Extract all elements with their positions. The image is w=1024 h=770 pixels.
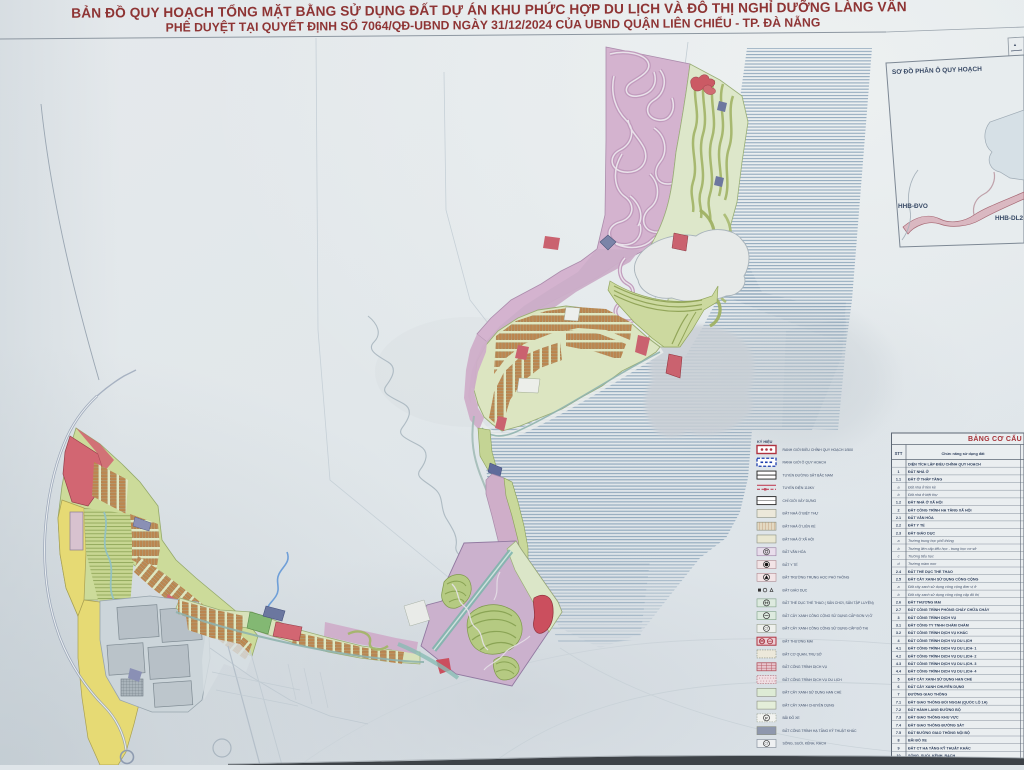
svg-text:ĐẤT GIÁO DỤC: ĐẤT GIÁO DỤC xyxy=(908,530,935,535)
svg-text:ĐẤT Y TẾ: ĐẤT Y TẾ xyxy=(908,523,925,528)
svg-text:ĐƯỜNG GIAO THÔNG: ĐƯỜNG GIAO THÔNG xyxy=(908,692,947,697)
svg-text:P: P xyxy=(765,715,768,720)
svg-text:ĐẤT THỂ DỤC THỂ THAO: ĐẤT THỂ DỤC THỂ THAO xyxy=(908,569,953,574)
svg-text:ĐẤT ĐƯỜNG GIAO THÔNG NỘI BỘ: ĐẤT ĐƯỜNG GIAO THÔNG NỘI BỘ xyxy=(908,730,970,735)
svg-text:ĐẤT GIAO THÔNG KHU VỰC: ĐẤT GIAO THÔNG KHU VỰC xyxy=(908,715,959,720)
svg-text:4.2: 4.2 xyxy=(896,654,901,658)
svg-text:ĐẤT CÂY XANH SỬ DỤNG CÔNG CỘNG: ĐẤT CÂY XANH SỬ DỤNG CÔNG CỘNG xyxy=(908,577,979,582)
svg-text:ĐẤT CÔNG TRÌNH DỊCH VỤ: ĐẤT CÔNG TRÌNH DỊCH VỤ xyxy=(783,664,828,669)
svg-text:KÝ HIỆU: KÝ HIỆU xyxy=(757,439,773,444)
svg-text:ĐẤT CÂY XANH SỬ DỤNG HẠN CHẾ: ĐẤT CÂY XANH SỬ DỤNG HẠN CHẾ xyxy=(908,676,973,681)
svg-text:6: 6 xyxy=(897,685,899,689)
svg-text:ĐẤT CÔNG TRÌNH DỊCH VỤ DU LỊCH: ĐẤT CÔNG TRÌNH DỊCH VỤ DU LỊCH- 1 xyxy=(908,646,976,651)
svg-text:HHB-ĐVO: HHB-ĐVO xyxy=(898,203,928,210)
svg-text:ĐẤT NHÀ Ở: ĐẤT NHÀ Ở xyxy=(908,469,930,474)
svg-text:2.3: 2.3 xyxy=(896,531,901,535)
svg-text:a: a xyxy=(897,485,899,489)
svg-text:ĐẤT CÔNG TRÌNH HẠ TẦNG XÃ HỘI: ĐẤT CÔNG TRÌNH HẠ TẦNG XÃ HỘI xyxy=(908,507,972,512)
svg-text:1: 1 xyxy=(897,470,899,474)
svg-text:RANH GIỚI ĐIỀU CHỈNH QUY HOẠCH: RANH GIỚI ĐIỀU CHỈNH QUY HOẠCH 1/500 xyxy=(783,447,854,452)
svg-text:ĐẤT VĂN HÓA: ĐẤT VĂN HÓA xyxy=(783,549,807,554)
svg-text:3.2: 3.2 xyxy=(896,631,901,635)
svg-text:Trường tiểu học: Trường tiểu học xyxy=(908,554,934,558)
svg-text:ĐẤT CÔNG TRÌNH DỊCH VỤ KHÁC: ĐẤT CÔNG TRÌNH DỊCH VỤ KHÁC xyxy=(908,630,968,635)
svg-text:1.2: 1.2 xyxy=(896,501,901,505)
svg-text:ĐẤT GIAO THÔNG ĐƯỜNG SẮT: ĐẤT GIAO THÔNG ĐƯỜNG SẮT xyxy=(908,722,965,727)
svg-text:8: 8 xyxy=(897,739,899,743)
svg-text:ĐẤT GIAO THÔNG ĐỐI NGOẠI (QUỐC: ĐẤT GIAO THÔNG ĐỐI NGOẠI (QUỐC LỘ 1A) xyxy=(908,699,988,704)
svg-text:2: 2 xyxy=(897,508,899,512)
svg-text:ĐẤT CÔNG TY TNHH CHÀM CHÀM: ĐẤT CÔNG TY TNHH CHÀM CHÀM xyxy=(908,623,969,628)
svg-text:2.1: 2.1 xyxy=(896,516,901,520)
svg-text:ĐẤT NHÀ Ở XÃ HỘI: ĐẤT NHÀ Ở XÃ HỘI xyxy=(783,536,815,541)
svg-text:BÃI ĐỖ XE: BÃI ĐỖ XE xyxy=(783,715,801,720)
svg-text:Chức năng sử dụng đất: Chức năng sử dụng đất xyxy=(941,452,985,456)
svg-text:ĐẤT CÔNG TRÌNH DỊCH VỤ DU LỊCH: ĐẤT CÔNG TRÌNH DỊCH VỤ DU LỊCH- 4 xyxy=(908,669,977,674)
svg-text:2.6: 2.6 xyxy=(896,601,901,605)
svg-text:3.1: 3.1 xyxy=(896,624,901,628)
svg-text:HHB-DL2: HHB-DL2 xyxy=(995,215,1023,222)
svg-text:ĐẤT CÂY XANH CHUYÊN DỤNG: ĐẤT CÂY XANH CHUYÊN DỤNG xyxy=(908,684,964,689)
svg-text:ĐẤT CÂY XANH CÔNG CỘNG SỬ DỤNG: ĐẤT CÂY XANH CÔNG CỘNG SỬ DỤNG CẤP ĐÔ TH… xyxy=(783,626,869,631)
svg-text:7.2: 7.2 xyxy=(896,708,901,712)
svg-text:Trường mầm non: Trường mầm non xyxy=(908,562,936,566)
svg-text:Trường liên cấp tiểu học - tru: Trường liên cấp tiểu học - trung học cơ … xyxy=(908,547,977,551)
svg-text:ĐẤT CÂY XANH CHUYÊN DỤNG: ĐẤT CÂY XANH CHUYÊN DỤNG xyxy=(783,702,835,707)
svg-text:4.3: 4.3 xyxy=(896,662,901,666)
svg-text:ĐẤT CÔNG TRÌNH DỊCH VỤ: ĐẤT CÔNG TRÌNH DỊCH VỤ xyxy=(908,615,956,620)
svg-text:ĐẤT CƠ QUAN, TRỤ SỞ: ĐẤT CƠ QUAN, TRỤ SỞ xyxy=(783,651,822,656)
svg-text:ĐẤT CÔNG TRÌNH DỊCH VỤ DU LỊCH: ĐẤT CÔNG TRÌNH DỊCH VỤ DU LỊCH xyxy=(783,677,843,682)
svg-text:ĐẤT CÂY XANH CÔNG CỘNG SỬ DỤNG: ĐẤT CÂY XANH CÔNG CỘNG SỬ DỤNG CẤP ĐƠN V… xyxy=(783,613,873,618)
svg-text:▲: ▲ xyxy=(1013,42,1017,47)
svg-text:ĐẤT THƯƠNG MẠI: ĐẤT THƯƠNG MẠI xyxy=(908,601,941,605)
svg-text:ĐẤT GIÁO DỤC: ĐẤT GIÁO DỤC xyxy=(783,587,808,592)
svg-text:ĐẤT CÔNG TRÌNH HẠ TẦNG KỸ THUẬ: ĐẤT CÔNG TRÌNH HẠ TẦNG KỸ THUẬT KHÁC xyxy=(783,728,857,733)
svg-text:4.1: 4.1 xyxy=(896,647,901,651)
svg-text:2.5: 2.5 xyxy=(896,578,901,582)
svg-text:ĐẤT CÔNG TRÌNH PHÒNG CHÁY CHỮA: ĐẤT CÔNG TRÌNH PHÒNG CHÁY CHỮA CHÁY xyxy=(908,607,990,612)
svg-text:SÔNG, SUỐI, KÊNH, RẠCH: SÔNG, SUỐI, KÊNH, RẠCH xyxy=(783,741,827,746)
svg-text:Đất cây xanh sử dụng công cộng: Đất cây xanh sử dụng công cộng đơn vị ở xyxy=(908,585,977,589)
svg-text:2.7: 2.7 xyxy=(896,608,901,612)
svg-text:CT: CT xyxy=(765,742,769,746)
svg-text:3: 3 xyxy=(897,616,899,620)
svg-text:ĐẤT Ở THẤP TẦNG: ĐẤT Ở THẤP TẦNG xyxy=(908,477,942,482)
svg-text:7.3: 7.3 xyxy=(896,716,901,720)
svg-text:DIỆN TÍCH LẬP ĐIỀU CHỈNH QUY H: DIỆN TÍCH LẬP ĐIỀU CHỈNH QUY HOẠCH xyxy=(908,461,981,466)
svg-text:a: a xyxy=(897,585,899,589)
svg-text:ĐẤT NHÀ Ở XÃ HỘI: ĐẤT NHÀ Ở XÃ HỘI xyxy=(908,500,943,505)
svg-text:ĐẤT HÀNH LANG ĐƯỜNG BỘ: ĐẤT HÀNH LANG ĐƯỜNG BỘ xyxy=(908,707,961,712)
svg-text:c: c xyxy=(898,554,900,558)
svg-text:ĐẤT VĂN HÓA: ĐẤT VĂN HÓA xyxy=(908,515,934,520)
svg-text:ĐẤT CÔNG TRÌNH DỊCH VỤ DU LỊCH: ĐẤT CÔNG TRÌNH DỊCH VỤ DU LỊCH- 3 xyxy=(908,661,976,666)
svg-text:b: b xyxy=(897,493,899,497)
svg-text:a: a xyxy=(897,539,899,543)
svg-text:CT: CT xyxy=(765,627,769,631)
svg-text:9: 9 xyxy=(897,746,899,750)
svg-text:2.2: 2.2 xyxy=(896,524,901,528)
svg-text:ĐẤT CÔNG TRÌNH DỊCH VỤ DU LỊCH: ĐẤT CÔNG TRÌNH DỊCH VỤ DU LỊCH- 2 xyxy=(908,653,976,658)
svg-text:ĐẤT CT HẠ TẦNG KỸ THUẬT KHÁC: ĐẤT CT HẠ TẦNG KỸ THUẬT KHÁC xyxy=(908,745,971,750)
svg-text:ĐẤT Y TẾ: ĐẤT Y TẾ xyxy=(783,562,799,567)
svg-text:Đất nhà ở biệt thự: Đất nhà ở biệt thự xyxy=(908,493,938,497)
svg-text:ĐẤT NHÀ Ở LIÊN KẾ: ĐẤT NHÀ Ở LIÊN KẾ xyxy=(783,524,817,529)
svg-text:Đất cây xanh sử dụng công cộng: Đất cây xanh sử dụng công cộng cấp đô th… xyxy=(908,593,979,597)
svg-text:7.5: 7.5 xyxy=(896,731,901,735)
svg-text:Trường trung học phổ thông: Trường trung học phổ thông xyxy=(908,539,955,543)
svg-text:1.1: 1.1 xyxy=(896,478,901,482)
svg-text:RANH GIỚI Ô QUY HOẠCH: RANH GIỚI Ô QUY HOẠCH xyxy=(783,460,827,465)
svg-text:ĐẤT NHÀ Ở BIỆT THỰ: ĐẤT NHÀ Ở BIỆT THỰ xyxy=(783,511,819,516)
svg-text:ĐẤT CÔNG TRÌNH DỊCH VỤ DU LỊCH: ĐẤT CÔNG TRÌNH DỊCH VỤ DU LỊCH xyxy=(908,638,972,643)
svg-text:CHỈ GIỚI XÂY DỰNG: CHỈ GIỚI XÂY DỰNG xyxy=(783,498,817,503)
svg-text:b: b xyxy=(897,547,899,551)
svg-text:7.1: 7.1 xyxy=(896,700,901,704)
svg-text:TUYẾN ĐIỆN 110KV: TUYẾN ĐIỆN 110KV xyxy=(783,485,816,490)
svg-text:TUYẾN ĐƯỜNG SẮT BẮC NAM: TUYẾN ĐƯỜNG SẮT BẮC NAM xyxy=(783,472,833,477)
svg-text:ĐẤT THƯƠNG MẠI: ĐẤT THƯƠNG MẠI xyxy=(783,639,813,644)
svg-text:7: 7 xyxy=(897,693,899,697)
svg-text:ĐẤT THỂ DỤC THỂ THAO ( SÂN CHƠ: ĐẤT THỂ DỤC THỂ THAO ( SÂN CHƠI, SÂN TẬP… xyxy=(783,600,874,605)
svg-text:BÃI ĐỖ XE: BÃI ĐỖ XE xyxy=(908,738,927,743)
svg-text:ĐẤT TRƯỜNG TRUNG HỌC PHỔ THÔNG: ĐẤT TRƯỜNG TRUNG HỌC PHỔ THÔNG xyxy=(783,575,850,580)
svg-text:ĐẤT CÂY XANH SỬ DỤNG HẠN CHẾ: ĐẤT CÂY XANH SỬ DỤNG HẠN CHẾ xyxy=(783,690,843,695)
svg-text:Đất nhà ở liền kề: Đất nhà ở liền kề xyxy=(908,485,936,489)
svg-text:STT: STT xyxy=(895,451,903,456)
svg-text:5: 5 xyxy=(897,677,899,681)
svg-text:b: b xyxy=(897,593,899,597)
